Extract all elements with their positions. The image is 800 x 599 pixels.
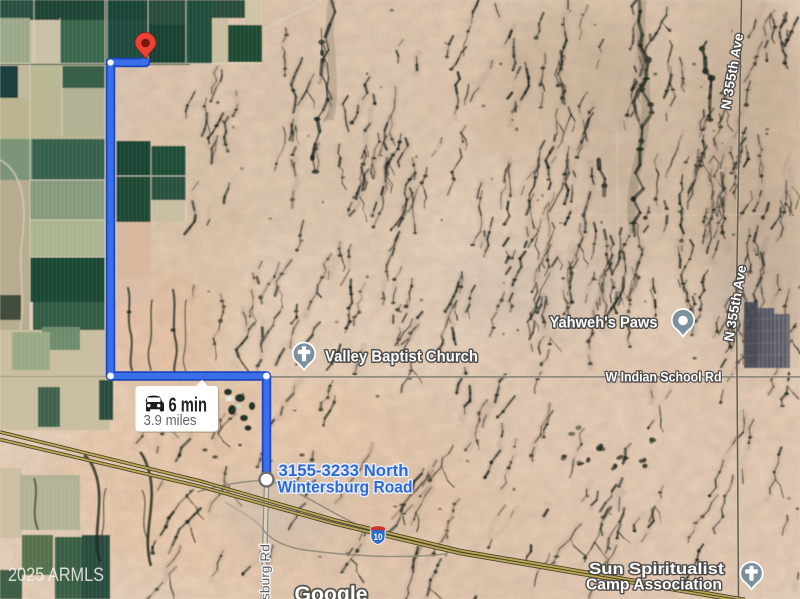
svg-text:2025 ARMLS: 2025 ARMLS xyxy=(8,564,104,586)
svg-text:Valley Baptist Church: Valley Baptist Church xyxy=(325,349,478,366)
svg-text:Sun Spiritualist: Sun Spiritualist xyxy=(589,561,724,578)
svg-text:Google: Google xyxy=(295,583,368,599)
svg-text:Camp Association: Camp Association xyxy=(586,577,722,594)
svg-text:Wintersburg Rd: Wintersburg Rd xyxy=(259,544,273,599)
svg-text:Wintersburg Road: Wintersburg Road xyxy=(278,478,413,497)
svg-text:W Indian School Rd: W Indian School Rd xyxy=(606,370,722,385)
svg-text:10: 10 xyxy=(374,532,383,542)
svg-text:3.9 miles: 3.9 miles xyxy=(144,412,197,429)
svg-text:Yahweh's Paws: Yahweh's Paws xyxy=(550,315,658,332)
